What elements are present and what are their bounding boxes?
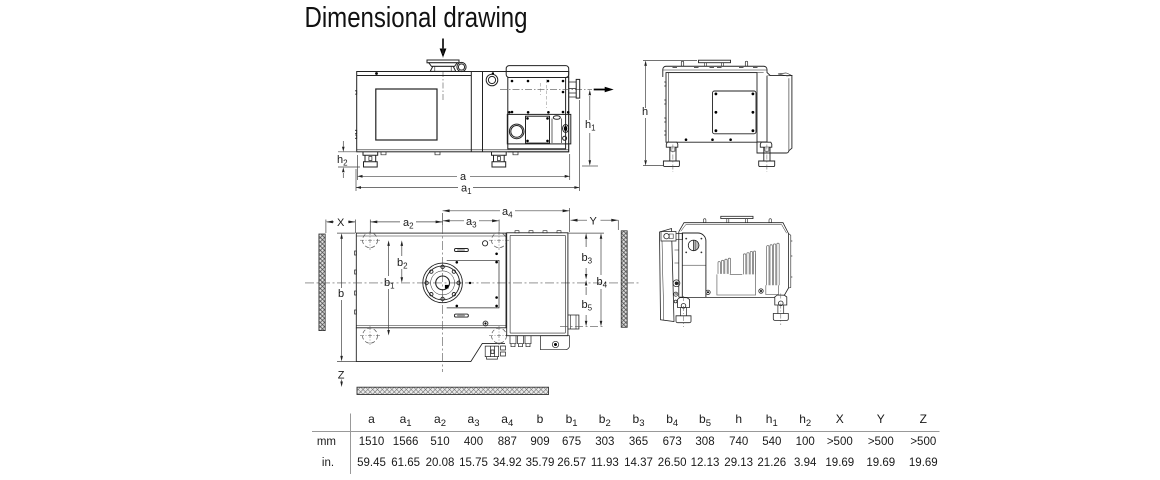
svg-text:b5: b5	[699, 412, 711, 429]
svg-text:26.50: 26.50	[658, 457, 687, 469]
svg-text:X: X	[337, 217, 345, 229]
svg-text:b4: b4	[666, 412, 678, 429]
svg-text:34.92: 34.92	[493, 457, 522, 469]
svg-text:>500: >500	[827, 436, 853, 448]
svg-text:308: 308	[695, 436, 714, 448]
svg-text:887: 887	[498, 436, 517, 448]
svg-text:365: 365	[629, 436, 648, 448]
svg-text:a3: a3	[466, 216, 477, 230]
svg-text:X: X	[836, 412, 844, 426]
svg-text:a1: a1	[400, 412, 412, 429]
svg-text:61.65: 61.65	[391, 457, 420, 469]
svg-text:a4: a4	[501, 412, 513, 429]
svg-text:11.93: 11.93	[591, 457, 619, 469]
svg-text:35.79: 35.79	[526, 457, 555, 469]
svg-text:Y: Y	[590, 216, 598, 228]
svg-text:a2: a2	[403, 217, 414, 231]
svg-text:b5: b5	[582, 299, 593, 313]
svg-text:a3: a3	[468, 412, 480, 429]
svg-text:a: a	[368, 412, 375, 426]
svg-text:19.69: 19.69	[825, 457, 854, 469]
svg-text:59.45: 59.45	[357, 457, 386, 469]
svg-text:21.26: 21.26	[757, 457, 786, 469]
svg-text:in.: in.	[322, 457, 334, 469]
svg-text:>500: >500	[868, 436, 894, 448]
svg-text:a: a	[460, 171, 467, 183]
svg-text:b4: b4	[597, 276, 608, 290]
svg-text:a1: a1	[461, 183, 472, 197]
svg-text:14.37: 14.37	[624, 457, 653, 469]
svg-text:a4: a4	[502, 206, 513, 220]
svg-text:100: 100	[796, 436, 815, 448]
svg-text:b3: b3	[633, 412, 645, 429]
svg-text:Z: Z	[920, 412, 927, 426]
svg-text:20.08: 20.08	[426, 457, 455, 469]
svg-text:b1: b1	[566, 412, 578, 429]
svg-text:740: 740	[729, 436, 748, 448]
svg-text:h1: h1	[766, 412, 778, 429]
svg-text:h2: h2	[799, 412, 811, 429]
svg-text:Y: Y	[877, 412, 885, 426]
svg-text:Dimensional drawing: Dimensional drawing	[305, 2, 528, 34]
svg-text:675: 675	[562, 436, 581, 448]
svg-text:26.57: 26.57	[557, 457, 586, 469]
svg-text:h2: h2	[337, 154, 348, 168]
svg-text:a2: a2	[434, 412, 446, 429]
svg-text:b3: b3	[582, 252, 593, 266]
svg-text:b: b	[338, 288, 344, 300]
svg-text:19.69: 19.69	[866, 457, 895, 469]
svg-text:3.94: 3.94	[794, 457, 817, 469]
svg-text:29.13: 29.13	[724, 457, 753, 469]
svg-text:h1: h1	[585, 119, 596, 133]
svg-text:>500: >500	[910, 436, 936, 448]
svg-text:1566: 1566	[393, 436, 419, 448]
svg-text:b1: b1	[384, 277, 395, 291]
svg-text:510: 510	[430, 436, 449, 448]
svg-text:1510: 1510	[359, 436, 385, 448]
svg-text:b2: b2	[599, 412, 611, 429]
svg-text:15.75: 15.75	[459, 457, 488, 469]
svg-text:mm: mm	[317, 436, 336, 448]
svg-text:909: 909	[530, 436, 549, 448]
svg-text:Z: Z	[338, 370, 345, 382]
svg-text:303: 303	[595, 436, 614, 448]
svg-text:h: h	[642, 106, 648, 118]
svg-text:540: 540	[762, 436, 781, 448]
svg-text:h: h	[735, 412, 742, 426]
svg-text:400: 400	[464, 436, 483, 448]
svg-text:673: 673	[663, 436, 682, 448]
svg-text:19.69: 19.69	[909, 457, 938, 469]
svg-text:b: b	[537, 412, 544, 426]
svg-text:b2: b2	[397, 257, 408, 271]
svg-text:12.13: 12.13	[691, 457, 720, 469]
